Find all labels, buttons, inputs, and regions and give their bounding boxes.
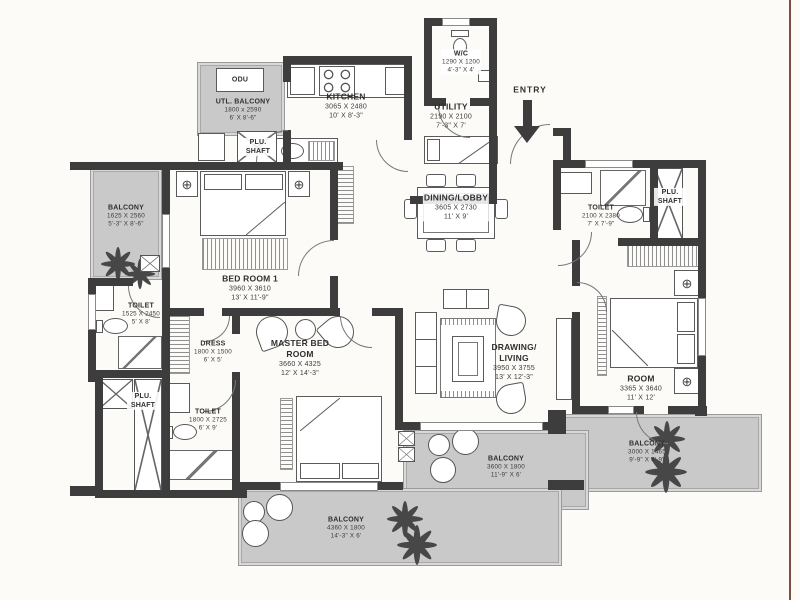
wall-segment: [88, 162, 343, 170]
wall-segment: [395, 422, 420, 430]
balcony-chair: [430, 457, 456, 483]
dining-chair: [456, 239, 476, 252]
bed-fold-line: [246, 202, 285, 235]
wall-segment: [330, 276, 338, 316]
wall-segment: [548, 480, 584, 490]
wall-segment: [283, 56, 411, 64]
living-rug-edge: [441, 391, 495, 397]
wall-segment: [162, 308, 204, 316]
door-arc: [298, 240, 334, 276]
sofa-seam: [415, 366, 437, 367]
door-arc: [204, 316, 230, 342]
washing-machine: [198, 133, 225, 161]
window: [585, 160, 633, 168]
odu-label: ODU: [232, 75, 248, 84]
wall-segment: [563, 128, 571, 164]
room-label-room: ROOM 3365 X 3640 11' X 12': [620, 373, 662, 402]
wall-segment: [378, 482, 403, 490]
wall-segment: [330, 162, 338, 240]
wall-segment: [238, 482, 246, 498]
nightstand: ⊕: [288, 171, 310, 197]
lamp-icon: ⊕: [682, 277, 693, 290]
wall-segment: [572, 312, 580, 414]
coffee-table-inner: [458, 342, 478, 376]
room-label-dress: DRESS 1800 X 1500 6' X 5': [194, 339, 232, 364]
room-label-toilet-right: TOILET 2100 X 2380 7' X 7'-9": [582, 203, 620, 228]
bed-fold-line: [612, 330, 648, 366]
wall-segment: [222, 308, 240, 316]
sliding-glass-door: [420, 422, 543, 431]
wall-segment: [470, 98, 497, 106]
room-label-utility-balcony: UTL. BALCONY 1800 x 2590 6' X 8'-6": [216, 97, 271, 122]
sofa-seam: [415, 339, 437, 340]
lamp-icon: ⊕: [182, 178, 193, 191]
page-frame-line: [789, 0, 791, 600]
sofa-seam: [466, 289, 467, 309]
room-label-drawing-living: DRAWING/ LIVING 3950 X 3755 13' X 12'-3": [486, 342, 542, 382]
plant-palm-icon: [396, 524, 438, 566]
pillow: [204, 174, 242, 190]
plu-shaft-label: PLU. SHAFT: [242, 138, 274, 156]
sink-drainboard: [308, 141, 335, 161]
toilet-sink: [560, 172, 592, 194]
wall-segment: [424, 18, 432, 106]
tv-console: [556, 318, 572, 400]
wall-segment: [395, 308, 403, 430]
nightstand: ⊕: [176, 171, 198, 197]
balcony-chair: [452, 428, 479, 455]
entry-arrow-head: [514, 126, 540, 143]
floor-plan: ⊕ ⊕ ⊕ ⊕: [0, 0, 800, 600]
armchair: [494, 304, 529, 339]
window: [608, 406, 634, 414]
room-label-balcony-bottom: BALCONY 4360 X 1800 14'-3" X 6': [327, 515, 365, 540]
sofa: [415, 312, 437, 394]
dining-chair: [426, 174, 446, 187]
wall-segment: [70, 162, 90, 170]
kitchen-appliance: [385, 67, 406, 95]
lamp-icon: ⊕: [682, 375, 693, 388]
shower-area: [168, 450, 236, 480]
room-label-dining-lobby: DINING/LOBBY 3605 X 2730 11' X 9': [423, 192, 489, 221]
wall-segment: [95, 378, 103, 498]
room-label-utility: UTILITY 2190 X 2100 7'-3" X 7': [430, 101, 472, 130]
room-label-bedroom1: BED ROOM 1 3960 X 3610 13' X 11'-9": [222, 273, 278, 302]
room-label-balcony-mid: BALCONY 3600 X 1800 11'-9" X 6': [487, 454, 525, 479]
nightstand: ⊕: [674, 270, 700, 296]
pillow: [677, 334, 695, 364]
shower-area: [118, 336, 162, 369]
wall-segment: [698, 160, 706, 413]
pillow: [245, 174, 283, 190]
duct-box: [140, 255, 160, 272]
window: [162, 214, 170, 268]
room-label-master-bedroom: MASTER BED ROOM 3660 X 4325 12' X 14'-3": [265, 338, 335, 378]
duct-box: [398, 431, 415, 446]
balcony-chair: [428, 434, 450, 456]
wall-segment: [695, 406, 707, 416]
dining-chair: [426, 239, 446, 252]
wall-segment: [88, 370, 170, 378]
pillow: [342, 463, 379, 479]
wc-bowl: [617, 206, 643, 223]
wall-segment: [572, 406, 608, 414]
nightstand: ⊕: [674, 368, 700, 394]
window: [280, 482, 378, 491]
bed-fold-line: [300, 398, 340, 431]
wc-tank: [643, 207, 650, 222]
entry-label: ENTRY: [513, 84, 547, 95]
pillow: [300, 463, 340, 479]
utility-pillow: [427, 139, 440, 161]
window: [442, 18, 470, 26]
balcony-chair: [242, 520, 269, 547]
room-label-kitchen: KITCHEN 3065 X 2480 10' X 8'-3": [325, 91, 367, 120]
wc-tank: [451, 30, 469, 37]
wall-segment: [283, 56, 291, 82]
armchair: [494, 382, 529, 417]
wall-segment: [548, 410, 566, 434]
plu-shaft-label: PLU. SHAFT: [127, 392, 159, 410]
fridge: [290, 67, 315, 95]
window: [698, 298, 706, 356]
duct-box: [398, 447, 415, 462]
living-rug-edge: [441, 319, 495, 325]
pillow: [677, 302, 695, 332]
window: [88, 294, 96, 330]
balcony-chair: [266, 494, 293, 521]
bedroom1-rug: [202, 238, 288, 270]
lamp-icon: ⊕: [294, 178, 305, 191]
room-wardrobe: [627, 243, 700, 267]
entry-arrow: [523, 100, 532, 126]
shower-area: [600, 170, 646, 206]
wall-segment: [95, 490, 247, 498]
door-arc: [376, 140, 408, 172]
wall-segment: [240, 308, 340, 316]
room-label-wc: W/C 1290 X 1200 4'-3" X 4': [441, 49, 481, 74]
wall-segment: [404, 56, 412, 140]
room-label-toilet-bottom: TOILET 1800 X 2725 6' X 9': [189, 407, 227, 432]
master-rug: [280, 398, 293, 470]
door-arc: [558, 232, 592, 266]
wall-segment: [162, 170, 170, 214]
wall-segment: [618, 238, 706, 246]
room-label-balcony-right: BALCONY 3000 X 1465 9'-9" X 4'-9": [628, 439, 666, 464]
wall-segment: [489, 106, 497, 204]
coffee-table: [452, 336, 484, 382]
wc-tank: [96, 320, 103, 333]
wall-segment: [489, 18, 497, 106]
door-arc: [577, 282, 607, 312]
room-label-toilet-left: TOILET 1525 X 2450 5' X 8': [122, 301, 160, 326]
dining-chair: [456, 174, 476, 187]
side-table: [295, 319, 316, 340]
room-label-balcony-left: BALCONY 1625 X 2560 5'-3" X 8'-6": [107, 203, 145, 228]
wall-segment: [70, 486, 98, 496]
plu-shaft-label: PLU. SHAFT: [654, 188, 686, 206]
wall-segment: [553, 168, 561, 230]
wall-segment: [88, 278, 133, 286]
